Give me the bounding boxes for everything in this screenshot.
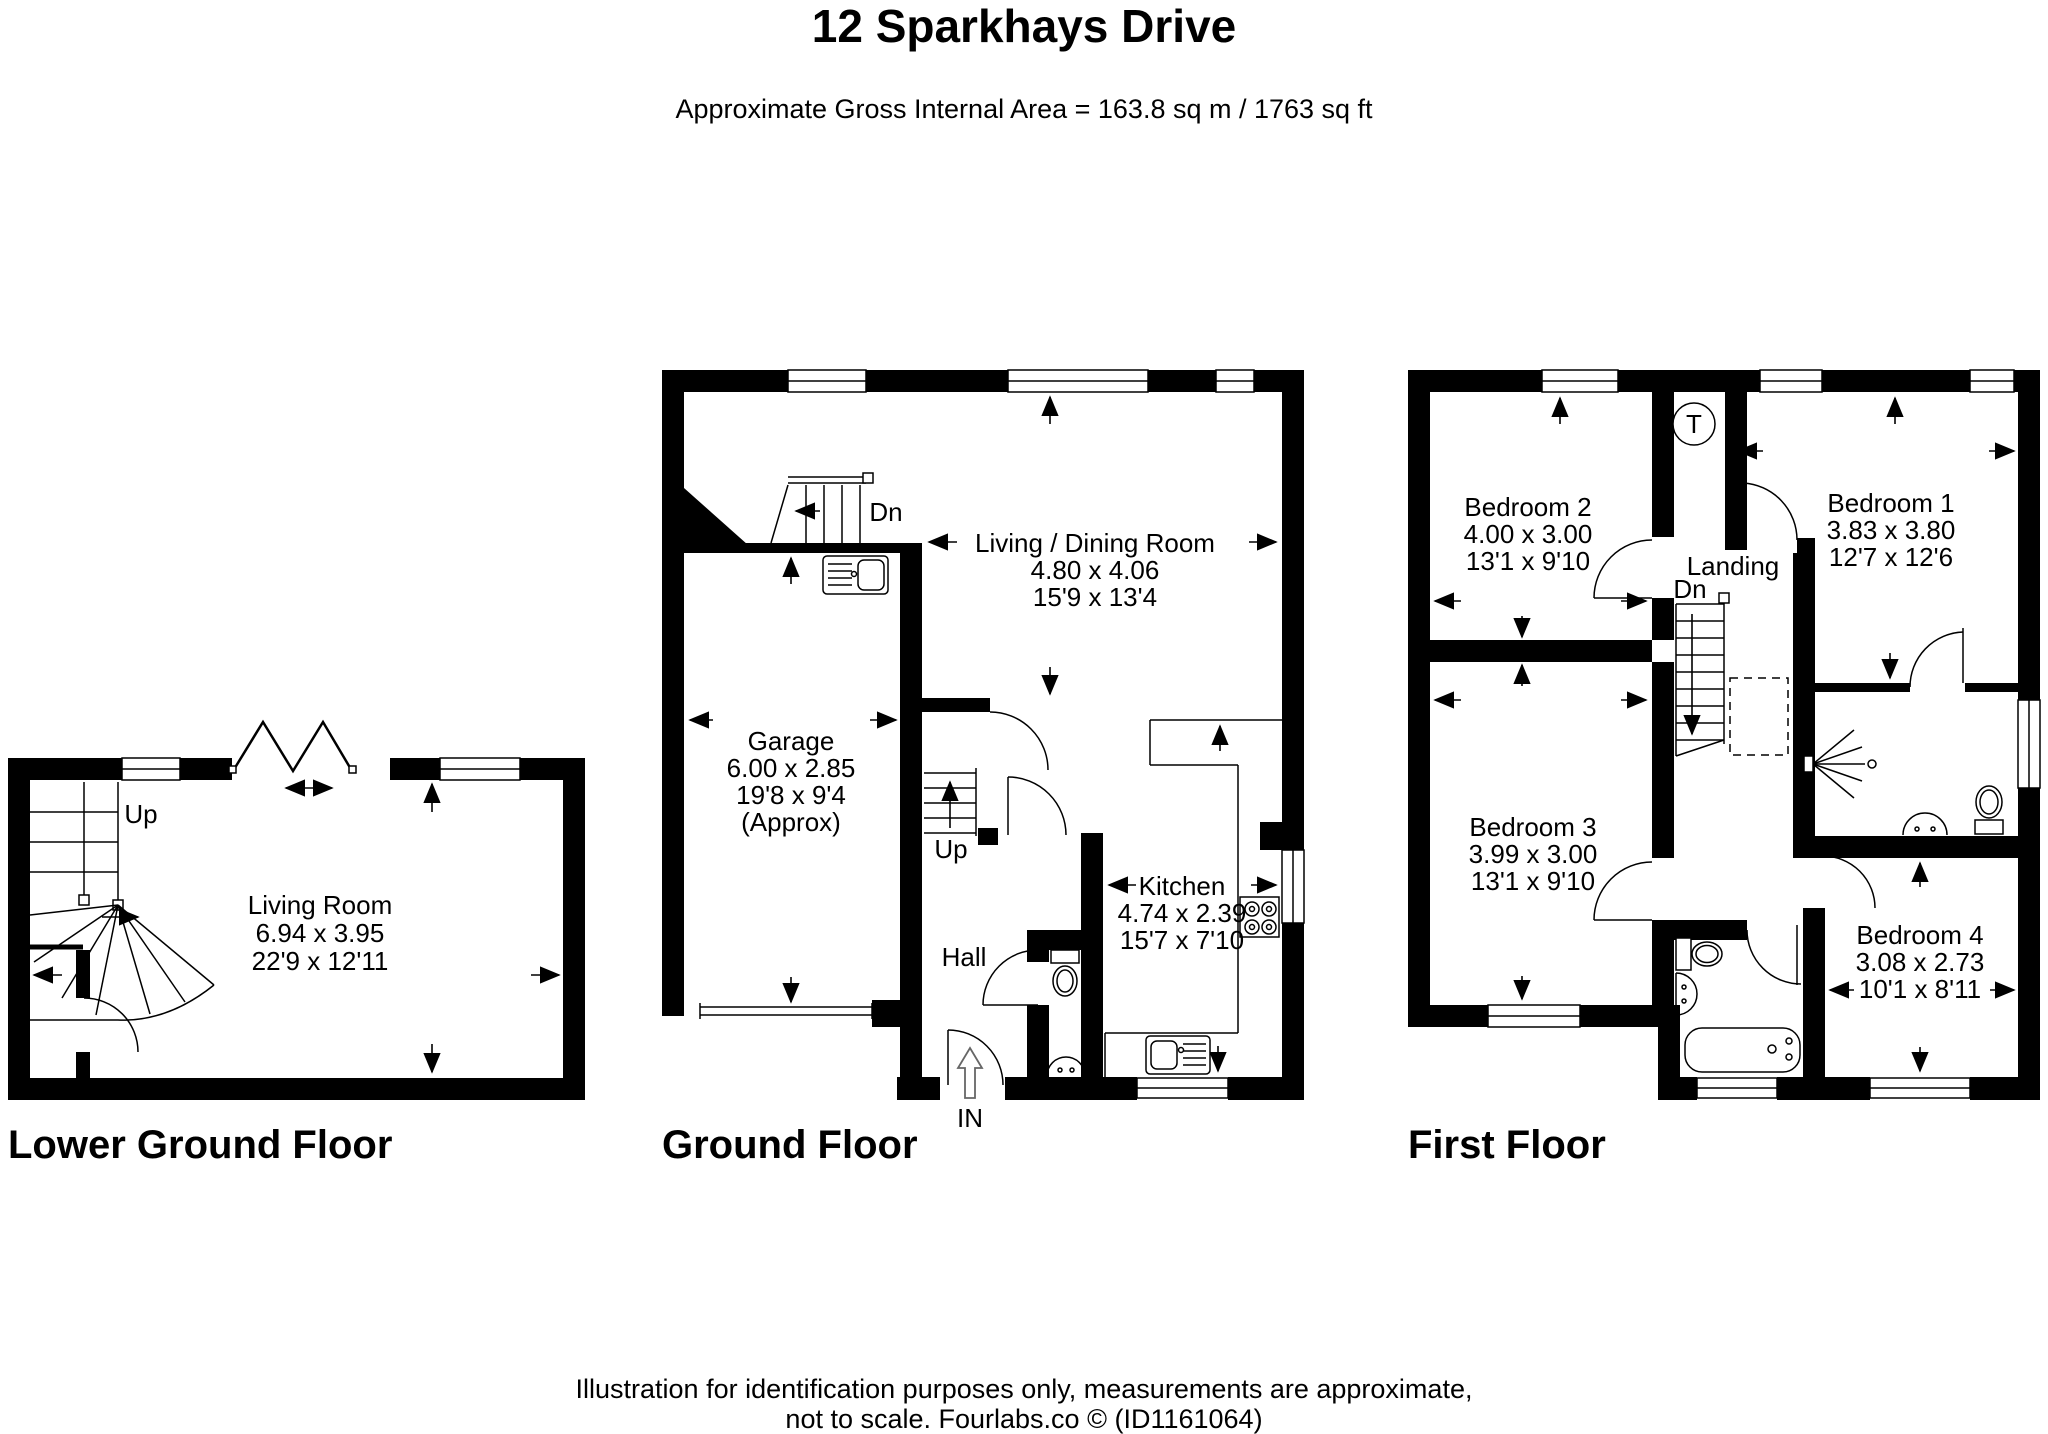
floor-label-ground: Ground Floor	[662, 1123, 918, 1167]
tank-indicator: T	[1673, 403, 1715, 445]
footer-line-1: Illustration for identification purposes…	[576, 1374, 1473, 1404]
toilet-icon	[1051, 950, 1079, 996]
page-title: 12 Sparkhays Drive	[812, 0, 1237, 52]
stairs-down-label: Dn	[869, 497, 902, 527]
room-size-metric: 6.00 x 2.85	[727, 753, 856, 783]
room-name: Living / Dining Room	[975, 528, 1215, 558]
window	[1137, 1078, 1228, 1098]
window	[1488, 1005, 1580, 1027]
ground-floor-plan: Garage 6.00 x 2.85 19'8 x 9'4 (Approx) L…	[662, 370, 1304, 1167]
room-size-imperial: 22'9 x 12'11	[252, 946, 389, 976]
stairs-down-label: Dn	[1673, 574, 1706, 604]
room-size-imperial: 19'8 x 9'4	[736, 780, 846, 810]
kitchen-sink-icon	[1146, 1036, 1210, 1074]
entrance-label: IN	[957, 1103, 983, 1133]
stairs-down	[771, 473, 873, 543]
room-size-metric: 6.94 x 3.95	[256, 918, 385, 948]
floor-label-first: First Floor	[1408, 1123, 1606, 1167]
room-living-dining: Living / Dining Room 4.80 x 4.06 15'9 x …	[975, 528, 1215, 612]
room-name: Bedroom 3	[1469, 812, 1596, 842]
window	[1282, 850, 1304, 923]
room-size-imperial: 15'7 x 7'10	[1120, 925, 1244, 955]
room-name: Kitchen	[1139, 871, 1226, 901]
room-size-metric: 3.83 x 3.80	[1827, 515, 1956, 545]
room-size-imperial: 10'1 x 8'11	[1859, 974, 1981, 1004]
room-size-imperial: 13'1 x 9'10	[1466, 546, 1590, 576]
room-size-metric: 4.80 x 4.06	[1031, 555, 1160, 585]
footer-line-2: not to scale. Fourlabs.co © (ID1161064)	[785, 1404, 1262, 1434]
room-living-room: Living Room 6.94 x 3.95 22'9 x 12'11	[248, 890, 393, 976]
door-arc	[84, 998, 138, 1052]
window	[122, 758, 180, 780]
room-bedroom-3: Bedroom 3 3.99 x 3.00 13'1 x 9'10	[1469, 812, 1598, 896]
room-name: Garage	[748, 726, 835, 756]
page-subtitle: Approximate Gross Internal Area = 163.8 …	[675, 94, 1373, 124]
lower-ground-floor-plan: Up Living Room 6.94 x 3.95 22'9 x 12'11 …	[8, 722, 585, 1167]
floor-plan-svg: 12 Sparkhays Drive Approximate Gross Int…	[0, 0, 2048, 1434]
stairs-up	[924, 768, 976, 836]
window	[1970, 370, 2014, 392]
room-bedroom-1: Bedroom 1 3.83 x 3.80 12'7 x 12'6	[1827, 488, 1956, 572]
room-kitchen: Kitchen 4.74 x 2.39 15'7 x 7'10	[1118, 871, 1247, 955]
cupboard-dashed	[1730, 678, 1788, 755]
stairs-up-label: Up	[124, 799, 157, 829]
room-size-imperial: 12'7 x 12'6	[1829, 542, 1953, 572]
room-bedroom-2: Bedroom 2 4.00 x 3.00 13'1 x 9'10	[1464, 492, 1593, 576]
first-floor-plan: T	[1408, 370, 2040, 1167]
tank-label: T	[1686, 409, 1702, 439]
floorplan-page: 12 Sparkhays Drive Approximate Gross Int…	[0, 0, 2048, 1434]
entrance-arrow-icon	[958, 1048, 982, 1098]
ensuite-toilet-icon	[1975, 786, 2003, 834]
room-size-metric: 3.99 x 3.00	[1469, 839, 1598, 869]
room-size-note: (Approx)	[741, 807, 841, 837]
window	[1542, 370, 1618, 392]
window	[788, 370, 866, 392]
room-garage: Garage 6.00 x 2.85 19'8 x 9'4 (Approx)	[727, 726, 856, 837]
window	[1760, 370, 1822, 392]
room-name: Bedroom 1	[1827, 488, 1954, 518]
window	[1216, 370, 1254, 392]
room-name: Bedroom 2	[1464, 492, 1591, 522]
room-name: Living Room	[248, 890, 393, 920]
floor-label-lower-ground: Lower Ground Floor	[8, 1123, 392, 1167]
bath-icon	[1685, 1028, 1800, 1072]
room-size-imperial: 13'1 x 9'10	[1471, 866, 1595, 896]
room-size-metric: 4.00 x 3.00	[1464, 519, 1593, 549]
bathroom-toilet-icon	[1676, 938, 1722, 970]
window	[1008, 370, 1148, 392]
bifold-door	[229, 722, 356, 788]
basin-icon	[1047, 1057, 1085, 1076]
room-hall-label: Hall	[942, 942, 987, 972]
room-size-metric: 4.74 x 2.39	[1118, 898, 1247, 928]
stairs-down	[1676, 593, 1729, 756]
window	[1697, 1078, 1777, 1098]
room-bedroom-4: Bedroom 4 3.08 x 2.73 10'1 x 8'11	[1856, 920, 1985, 1004]
stairs-up-label: Up	[934, 834, 967, 864]
window	[440, 758, 520, 780]
window	[1870, 1078, 1970, 1098]
room-size-metric: 3.08 x 2.73	[1856, 947, 1985, 977]
utility-sink-icon	[823, 556, 888, 594]
stairs-up	[30, 782, 214, 1020]
ensuite-basin-icon	[1903, 813, 1947, 835]
room-name: Bedroom 4	[1856, 920, 1983, 950]
window	[2018, 700, 2040, 788]
garage-door	[700, 1003, 872, 1019]
room-size-imperial: 15'9 x 13'4	[1033, 582, 1157, 612]
